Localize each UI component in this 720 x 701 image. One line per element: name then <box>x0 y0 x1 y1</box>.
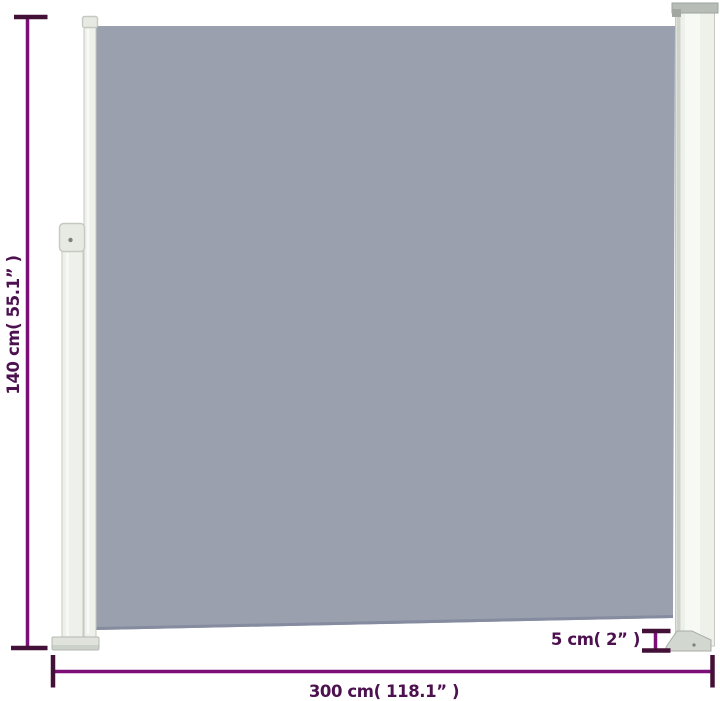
right-post-shade <box>677 12 681 645</box>
width-dimension: 300 cm( 118.1” ) <box>53 655 713 701</box>
product-dimension-diagram: 140 cm( 55.1” ) 300 cm( 118.1” ) 5 cm( 2… <box>0 0 720 701</box>
left-profile-pole <box>84 17 96 640</box>
awning <box>52 3 718 651</box>
width-label: 300 cm( 118.1” ) <box>309 682 459 701</box>
right-post-foot-screw <box>692 643 695 646</box>
right-post-highlight <box>685 13 700 644</box>
right-post-cap-tab <box>672 9 681 17</box>
post-depth-label: 5 cm( 2” ) <box>551 630 640 649</box>
height-dimension: 140 cm( 55.1” ) <box>4 17 48 648</box>
post-depth-dimension: 5 cm( 2” ) <box>551 630 671 651</box>
height-label: 140 cm( 55.1” ) <box>4 255 23 394</box>
pull-post <box>62 248 83 640</box>
fabric-panel <box>95 26 675 630</box>
pull-post-screw <box>68 238 72 242</box>
base-plate-front <box>53 645 99 650</box>
pull-post-cap <box>60 224 85 252</box>
left-profile-pole-cap <box>83 17 98 28</box>
awning-diagram: 140 cm( 55.1” ) 300 cm( 118.1” ) 5 cm( 2… <box>0 0 720 701</box>
